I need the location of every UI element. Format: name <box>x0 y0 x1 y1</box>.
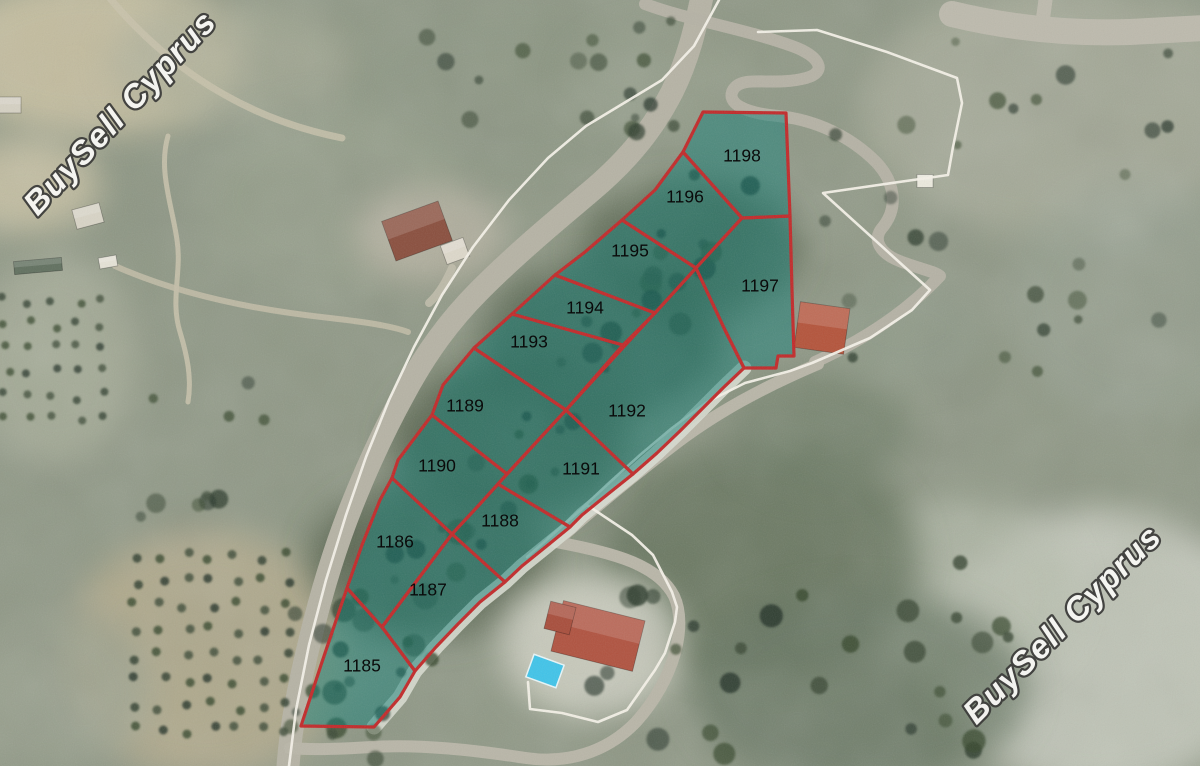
plot-label-1185: 1185 <box>343 656 381 676</box>
plot-label-1187: 1187 <box>409 580 447 600</box>
plot-label-1197: 1197 <box>741 276 779 296</box>
plot-label-1190: 1190 <box>418 456 456 476</box>
plot-label-1195: 1195 <box>611 241 649 261</box>
plot-label-1186: 1186 <box>376 532 414 552</box>
plot-label-1188: 1188 <box>481 511 519 531</box>
plot-label-1192: 1192 <box>608 401 646 421</box>
plot-label-1194: 1194 <box>566 298 604 318</box>
plot-label-1198: 1198 <box>723 146 761 166</box>
plot-label-1193: 1193 <box>510 332 548 352</box>
satellite-map: 1185118611871188118911901191119211931194… <box>0 0 1200 766</box>
map-image: 1185118611871188118911901191119211931194… <box>0 0 1200 766</box>
plot-label-1196: 1196 <box>666 187 704 207</box>
plot-label-1189: 1189 <box>446 396 484 416</box>
plot-label-1191: 1191 <box>562 459 600 479</box>
